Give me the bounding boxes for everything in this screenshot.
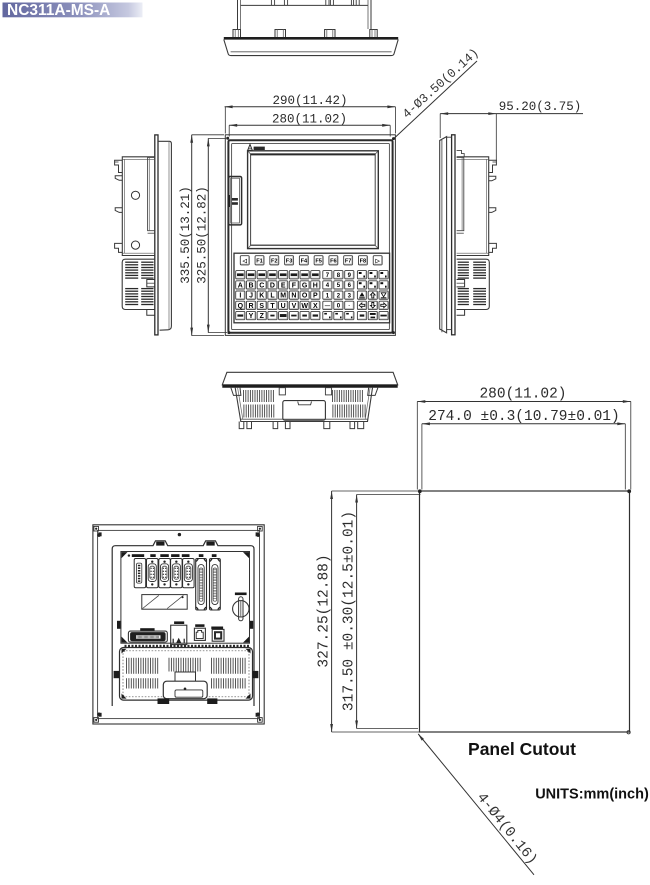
svg-text:I: I bbox=[239, 293, 241, 300]
svg-text:290(11.42): 290(11.42) bbox=[272, 94, 347, 108]
svg-text:M: M bbox=[280, 293, 286, 300]
svg-text:—: — bbox=[325, 303, 331, 309]
svg-text:F2: F2 bbox=[271, 258, 278, 264]
svg-text:B: B bbox=[248, 282, 253, 289]
svg-text:335.50(13.21): 335.50(13.21) bbox=[179, 186, 193, 284]
svg-text:325.50(12.82): 325.50(12.82) bbox=[196, 186, 210, 284]
svg-text:X: X bbox=[313, 303, 318, 310]
svg-text:R: R bbox=[248, 303, 253, 310]
svg-text:G: G bbox=[302, 282, 308, 289]
svg-text:H: H bbox=[313, 282, 318, 289]
svg-text:L: L bbox=[270, 293, 275, 300]
svg-text:F4: F4 bbox=[301, 258, 308, 264]
svg-text:·: · bbox=[348, 303, 350, 309]
svg-text:V: V bbox=[292, 303, 297, 310]
svg-text:S: S bbox=[259, 303, 264, 310]
svg-text:327.25(12.88): 327.25(12.88) bbox=[317, 554, 333, 667]
svg-text:D: D bbox=[270, 282, 275, 289]
svg-text:F3: F3 bbox=[286, 258, 293, 264]
svg-text:U: U bbox=[281, 303, 286, 310]
svg-text:F1: F1 bbox=[256, 258, 263, 264]
svg-text:F: F bbox=[292, 282, 297, 289]
svg-text:F6: F6 bbox=[330, 258, 337, 264]
svg-text:Y: Y bbox=[249, 313, 254, 320]
svg-text:◁: ◁ bbox=[242, 257, 248, 264]
svg-text:F8: F8 bbox=[360, 258, 367, 264]
svg-text:280(11.02): 280(11.02) bbox=[272, 113, 347, 127]
svg-text:280(11.02): 280(11.02) bbox=[479, 387, 566, 403]
svg-text:▷: ▷ bbox=[375, 257, 381, 264]
svg-text:C: C bbox=[259, 282, 264, 289]
svg-text:T: T bbox=[270, 303, 275, 310]
svg-text:A: A bbox=[238, 282, 243, 289]
svg-text:N: N bbox=[291, 293, 296, 300]
svg-text:95.20(3.75): 95.20(3.75) bbox=[499, 100, 582, 114]
svg-text:E: E bbox=[281, 282, 286, 289]
svg-text:O: O bbox=[302, 293, 308, 300]
svg-text:UNITS:mm(inch): UNITS:mm(inch) bbox=[535, 787, 649, 803]
svg-text:F7: F7 bbox=[345, 258, 352, 264]
svg-text:W: W bbox=[301, 303, 308, 310]
svg-text:F5: F5 bbox=[315, 258, 322, 264]
svg-text:P: P bbox=[313, 293, 318, 300]
svg-text:274.0 ±0.3(10.79±0.01): 274.0 ±0.3(10.79±0.01) bbox=[428, 409, 619, 425]
svg-text:Panel Cutout: Panel Cutout bbox=[468, 739, 576, 759]
svg-text:317.50 ±0.30(12.5±0.01): 317.50 ±0.30(12.5±0.01) bbox=[341, 511, 357, 711]
svg-text:Q: Q bbox=[238, 303, 244, 310]
svg-text:J: J bbox=[249, 293, 253, 300]
svg-text:K: K bbox=[259, 293, 264, 300]
svg-text:Z: Z bbox=[260, 313, 265, 320]
svg-text:NC311A-MS-A: NC311A-MS-A bbox=[7, 2, 110, 19]
